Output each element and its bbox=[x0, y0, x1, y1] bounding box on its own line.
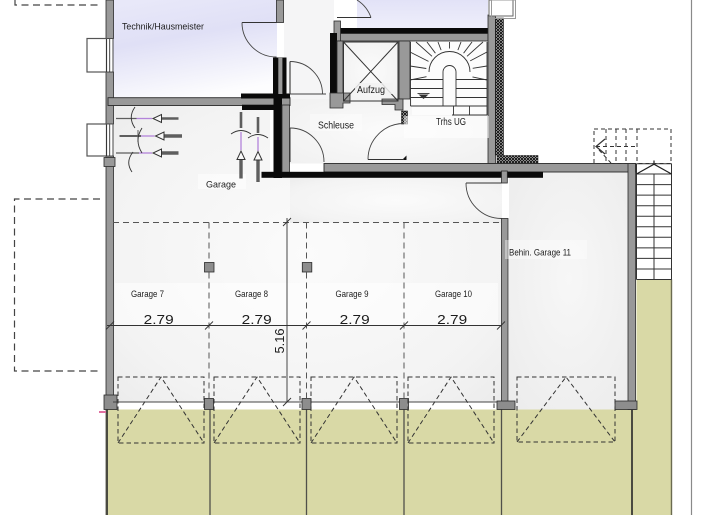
svg-text:Garage 9: Garage 9 bbox=[336, 289, 369, 300]
svg-text:2.79: 2.79 bbox=[437, 313, 467, 327]
svg-text:2.79: 2.79 bbox=[144, 313, 174, 327]
svg-text:2.79: 2.79 bbox=[242, 313, 272, 327]
svg-text:Technik/Hausmeister: Technik/Hausmeister bbox=[122, 22, 204, 33]
svg-text:Aufzug: Aufzug bbox=[357, 85, 385, 96]
svg-text:Schleuse: Schleuse bbox=[318, 121, 354, 132]
svg-text:Trhs UG: Trhs UG bbox=[436, 117, 466, 128]
svg-text:Garage 7: Garage 7 bbox=[131, 289, 164, 300]
svg-text:5.16: 5.16 bbox=[273, 328, 287, 353]
svg-text:Garage: Garage bbox=[206, 180, 236, 191]
svg-text:Garage 10: Garage 10 bbox=[435, 289, 472, 300]
svg-text:2.79: 2.79 bbox=[340, 313, 370, 327]
svg-text:Garage 8: Garage 8 bbox=[235, 289, 268, 300]
svg-text:Behin. Garage 11: Behin. Garage 11 bbox=[509, 248, 571, 259]
